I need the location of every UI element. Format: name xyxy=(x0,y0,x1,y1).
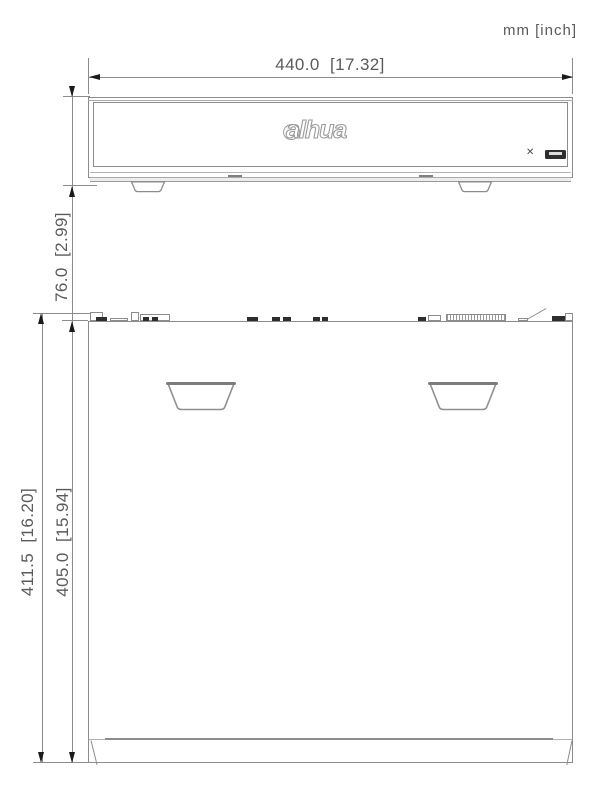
height-dimension-label: 76.0 [2.99] xyxy=(52,212,72,302)
depth-total-dimension-label: 411.5 [16.20] xyxy=(18,488,38,596)
rear-connector xyxy=(418,317,426,321)
dim-line xyxy=(42,313,43,763)
arrowhead-bottom xyxy=(69,752,75,763)
arrowhead-top xyxy=(69,86,75,97)
front-edge-line xyxy=(105,738,553,740)
rear-connector xyxy=(247,317,258,321)
arrowhead-bottom xyxy=(69,186,75,197)
arrowhead-top xyxy=(38,313,44,324)
rear-connector xyxy=(322,317,328,321)
arrowhead-top xyxy=(69,321,75,332)
foot-mark xyxy=(228,175,242,177)
rear-connector xyxy=(131,312,139,321)
arrowhead-right xyxy=(562,74,573,80)
ext-line xyxy=(63,96,90,97)
depth-body-dimension-label: 405.0 [15.94] xyxy=(53,487,73,597)
dahua-logo: alhua xyxy=(286,116,378,146)
dimension-drawing: mm [inch] alhua ✕ xyxy=(0,0,607,785)
rear-connector xyxy=(272,317,280,321)
rear-connector xyxy=(313,317,320,321)
cross-marking-icon: ✕ xyxy=(526,148,534,158)
front-foot-right-icon xyxy=(456,181,494,193)
front-foot-left-icon xyxy=(129,181,167,193)
front-top-seam-line xyxy=(88,100,573,101)
width-dimension-label: 440.0 [17.32] xyxy=(275,55,385,76)
rear-connector xyxy=(446,314,506,321)
foot-mark xyxy=(419,175,433,177)
front-lower-seam-line xyxy=(90,172,571,173)
handle-right-icon xyxy=(425,381,501,412)
rear-connector xyxy=(428,315,441,321)
rear-latch-line xyxy=(527,308,547,320)
rear-connector xyxy=(96,317,107,321)
arrowhead-bottom xyxy=(38,752,44,763)
rear-connector xyxy=(110,318,128,321)
rear-connector xyxy=(152,317,158,321)
rear-connector xyxy=(552,316,565,321)
dim-line xyxy=(88,77,573,78)
unit-label: mm [inch] xyxy=(503,22,577,39)
usb-port-icon xyxy=(545,150,566,159)
rear-connector xyxy=(565,313,573,321)
handle-left-icon xyxy=(163,381,239,412)
rear-connector xyxy=(143,317,149,321)
ext-line xyxy=(62,320,88,321)
arrowhead-left xyxy=(89,74,100,80)
rear-connector xyxy=(283,317,291,321)
